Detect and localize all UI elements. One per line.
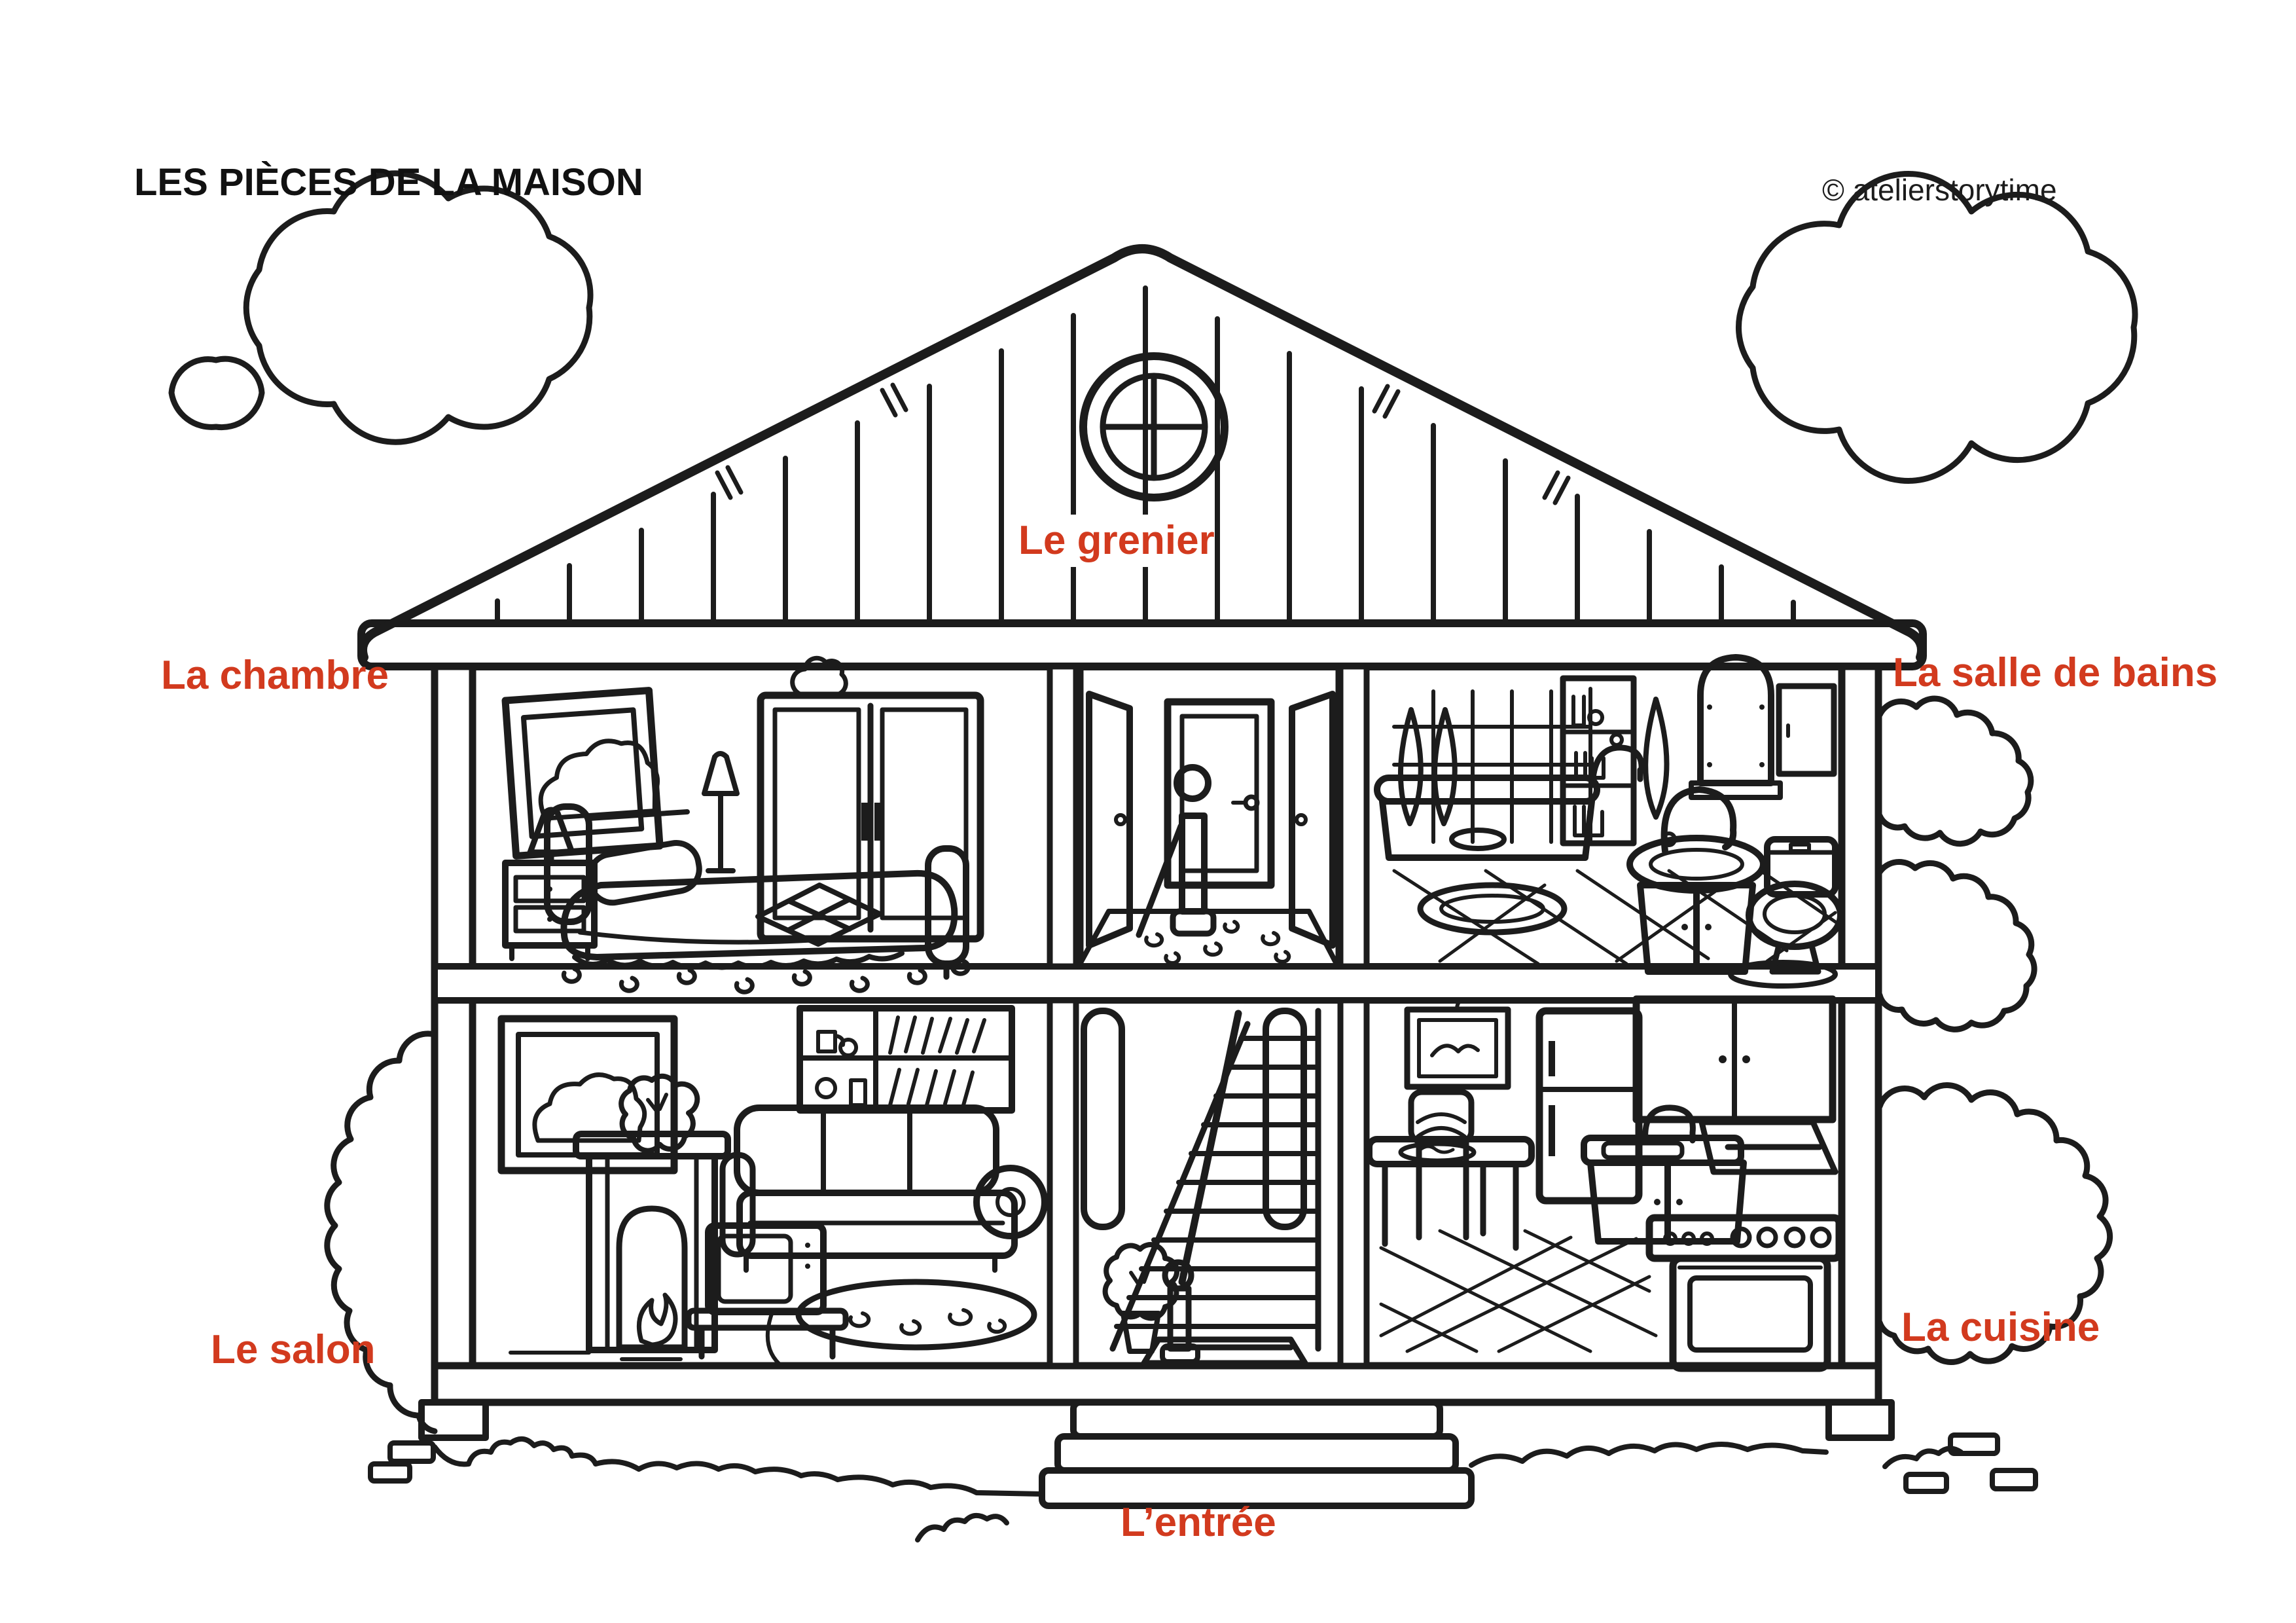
room-label-salon: Le salon (211, 1327, 376, 1372)
ground-line-left (435, 1439, 1042, 1494)
grass-tuft-center (918, 1516, 1007, 1540)
left-wall-pillar (435, 666, 473, 1402)
cloud-right (1738, 174, 2135, 481)
room-label-chambre: La chambre (161, 653, 389, 698)
page-title: LES PIÈCES DE LA MAISON (134, 161, 643, 204)
worksheet-page: LES PIÈCES DE LA MAISON © atelierstoryti… (0, 0, 2296, 1623)
divider-upper-right (1340, 666, 1367, 966)
room-label-grenier: Le grenier (1018, 518, 1215, 563)
ground-line-right (1471, 1444, 1826, 1465)
divider-lower-right (1340, 1000, 1367, 1366)
cloud-left (171, 173, 590, 442)
right-bush-upper (1880, 699, 2031, 844)
base-band (435, 1366, 1878, 1402)
room-label-entree: L’entrée (1121, 1500, 1276, 1545)
front-steps (1042, 1402, 1471, 1506)
right-pillar-base (1829, 1402, 1892, 1438)
right-bush-middle (1880, 862, 2034, 1029)
room-label-cuisine: La cuisine (1901, 1305, 2100, 1350)
room-label-salle-de-bains: La salle de bains (1893, 650, 2217, 695)
divider-lower-left (1050, 1000, 1076, 1366)
right-wall-pillar (1842, 666, 1878, 1402)
scene-ink (171, 173, 2135, 1540)
attic-round-window-icon (1083, 356, 1225, 498)
divider-upper-left (1050, 666, 1076, 966)
house-cutaway-illustration: LES PIÈCES DE LA MAISON © atelierstoryti… (0, 0, 2296, 1623)
roof-fascia (361, 623, 1923, 666)
credit-text: © atelierstorytime (1822, 173, 2057, 207)
